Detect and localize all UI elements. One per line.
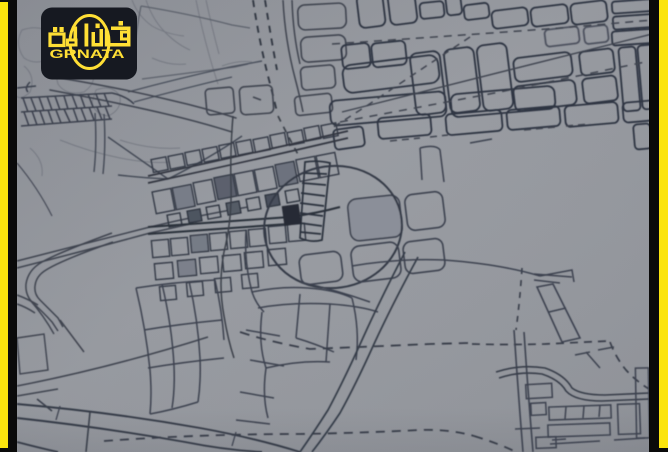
svg-text:GRNATA: GRNATA	[50, 47, 126, 61]
